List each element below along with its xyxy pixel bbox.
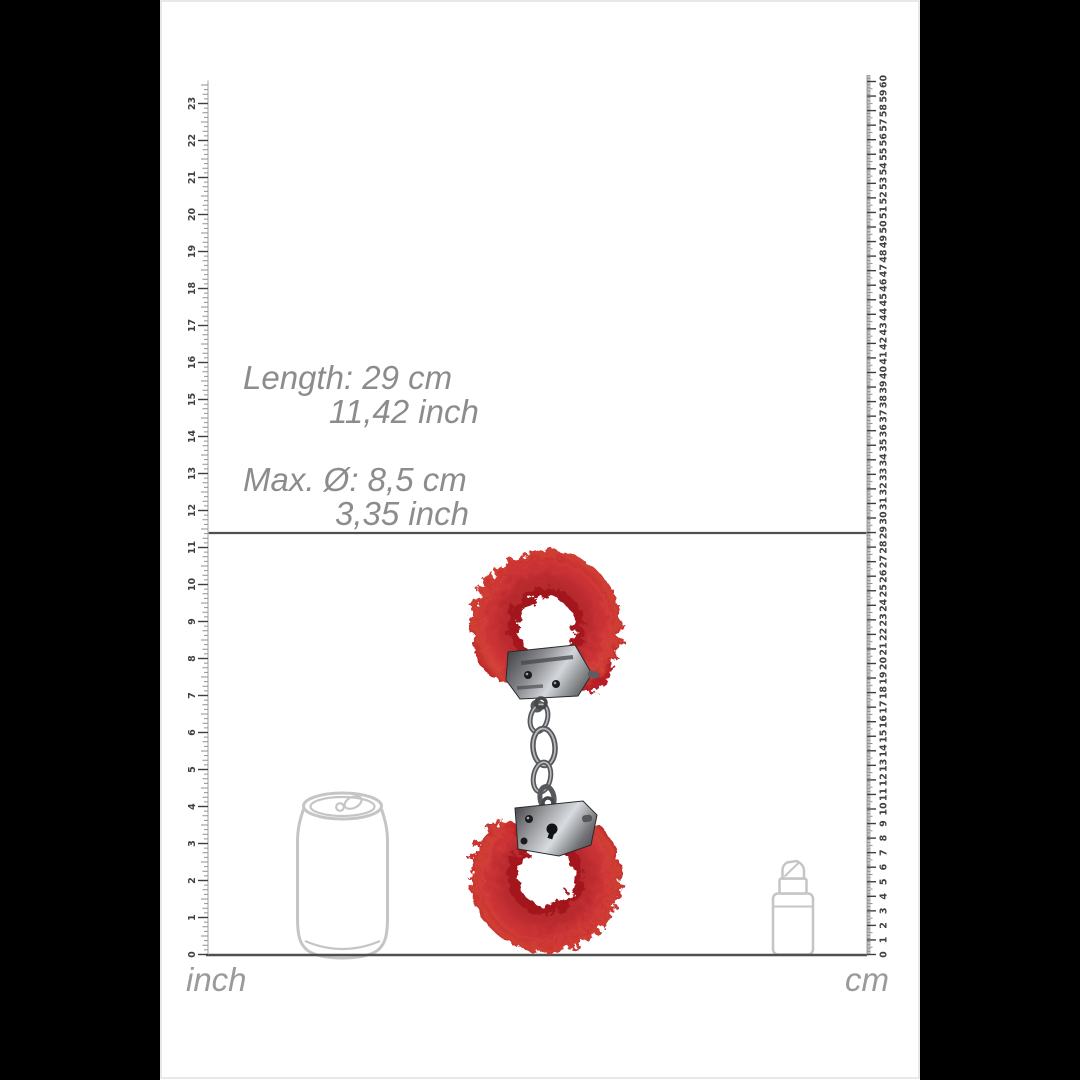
ruler-cm: 0123456789101112131415161718192021222324… [867, 75, 890, 958]
ruler-tick-label: 1 [879, 937, 890, 944]
ruler-tick-label: 22 [879, 628, 890, 641]
ruler-tick-label: 4 [187, 803, 198, 810]
ruler-tick-label: 52 [879, 191, 890, 204]
ruler-tick-label: 6 [187, 729, 198, 736]
ruler-tick-label: 0 [187, 951, 198, 958]
ruler-tick-label: 46 [879, 278, 890, 292]
bottom-cuff-lock-body [515, 798, 597, 856]
length-label-cm: Length: 29 cm [243, 359, 452, 396]
ruler-tick-label: 21 [187, 171, 198, 184]
ruler-tick-label: 37 [879, 410, 890, 423]
ruler-tick-label: 19 [187, 245, 198, 258]
ruler-tick-label: 43 [879, 322, 890, 335]
ruler-tick-label: 21 [879, 642, 890, 655]
ruler-tick-label: 20 [187, 208, 198, 222]
ruler-tick-label: 39 [879, 380, 890, 393]
ruler-tick-label: 16 [187, 356, 198, 370]
ruler-tick-label: 30 [879, 511, 890, 525]
ruler-tick-label: 9 [187, 618, 198, 625]
ruler-tick-label: 41 [879, 351, 890, 364]
ruler-tick-label: 2 [879, 922, 890, 929]
ruler-tick-label: 45 [879, 293, 890, 306]
ruler-tick-label: 10 [879, 802, 890, 816]
ruler-tick-label: 14 [187, 430, 198, 444]
ruler-tick-label: 10 [187, 578, 198, 592]
ruler-tick-label: 47 [879, 264, 890, 277]
ruler-tick-label: 48 [879, 249, 890, 263]
ruler-tick-label: 0 [879, 951, 890, 958]
ruler-tick-label: 26 [879, 569, 890, 583]
ruler-tick-label: 19 [879, 671, 890, 684]
ruler-tick-label: 59 [879, 89, 890, 102]
ruler-tick-label: 11 [187, 541, 198, 554]
ruler-tick-label: 55 [879, 148, 890, 161]
ruler-tick-label: 58 [879, 104, 890, 118]
ruler-tick-label: 33 [879, 468, 890, 481]
ruler-tick-label: 12 [187, 504, 198, 517]
ruler-tick-label: 17 [187, 319, 198, 332]
ruler-tick-label: 7 [187, 692, 198, 699]
ruler-tick-label: 24 [879, 598, 890, 612]
ruler-tick-label: 16 [879, 715, 890, 729]
ruler-tick-label: 60 [879, 75, 890, 89]
ruler-tick-label: 25 [879, 584, 890, 597]
ruler-tick-label: 44 [879, 307, 890, 321]
right-letterbox-bar [920, 0, 1080, 1080]
ruler-tick-label: 22 [187, 134, 198, 147]
ruler-tick-label: 1 [187, 914, 198, 921]
ruler-tick-label: 20 [879, 657, 890, 671]
length-label-inch: 11,42 inch [329, 393, 479, 430]
ruler-tick-label: 14 [879, 744, 890, 758]
ruler-tick-label: 38 [879, 395, 890, 409]
left-letterbox-bar [0, 0, 160, 1080]
ruler-tick-label: 3 [187, 840, 198, 847]
ruler-tick-label: 2 [187, 877, 198, 884]
ruler-tick-label: 15 [879, 730, 890, 743]
diameter-label-inch: 3,35 inch [335, 495, 469, 532]
ruler-tick-label: 18 [879, 686, 890, 700]
ruler-tick-label: 40 [879, 366, 890, 380]
soda-can-icon [298, 793, 388, 958]
ruler-tick-label: 3 [879, 908, 890, 915]
ruler-tick-label: 28 [879, 540, 890, 554]
diameter-label-cm: Max. Ø: 8,5 cm [243, 461, 467, 498]
lipstick-base [773, 894, 813, 955]
ruler-tick-label: 12 [879, 773, 890, 786]
ruler-tick-label: 54 [879, 162, 890, 176]
ruler-tick-label: 13 [187, 467, 198, 480]
ruler-tick-label: 42 [879, 337, 890, 350]
ruler-tick-label: 56 [879, 133, 890, 147]
ruler-tick-label: 27 [879, 555, 890, 568]
ruler-tick-label: 53 [879, 177, 890, 190]
ruler-tick-label: 31 [879, 497, 890, 510]
ruler-tick-label: 9 [879, 820, 890, 827]
ruler-tick-label: 18 [187, 282, 198, 296]
cm-unit-label: cm [845, 961, 889, 998]
ruler-tick-label: 5 [879, 878, 890, 885]
ruler-tick-label: 15 [187, 393, 198, 406]
inch-unit-label: inch [186, 961, 247, 998]
ruler-tick-label: 7 [879, 849, 890, 856]
ruler-tick-label: 11 [879, 788, 890, 801]
product-dimension-image: Length: 29 cm 11,42 inch Max. Ø: 8,5 cm … [0, 0, 1080, 1080]
ruler-tick-label: 8 [879, 834, 890, 841]
ruler-tick-label: 23 [879, 613, 890, 626]
ruler-tick-label: 4 [879, 893, 890, 900]
ruler-tick-label: 13 [879, 759, 890, 772]
ruler-tick-label: 51 [879, 206, 890, 219]
ruler-tick-label: 5 [187, 766, 198, 773]
ruler-tick-label: 49 [879, 235, 890, 248]
ruler-tick-label: 8 [187, 655, 198, 662]
diagram-canvas: Length: 29 cm 11,42 inch Max. Ø: 8,5 cm … [0, 0, 1080, 1080]
ruler-tick-label: 35 [879, 439, 890, 452]
ruler-tick-label: 32 [879, 482, 890, 495]
ruler-tick-label: 34 [879, 453, 890, 467]
ruler-tick-label: 50 [879, 220, 890, 234]
ruler-tick-label: 6 [879, 864, 890, 871]
ruler-tick-label: 23 [187, 97, 198, 110]
ruler-tick-label: 36 [879, 424, 890, 438]
ruler-tick-label: 17 [879, 701, 890, 714]
ruler-tick-label: 57 [879, 119, 890, 132]
can-body [298, 809, 388, 958]
ruler-tick-label: 29 [879, 526, 890, 539]
lipstick-collar [780, 879, 807, 894]
